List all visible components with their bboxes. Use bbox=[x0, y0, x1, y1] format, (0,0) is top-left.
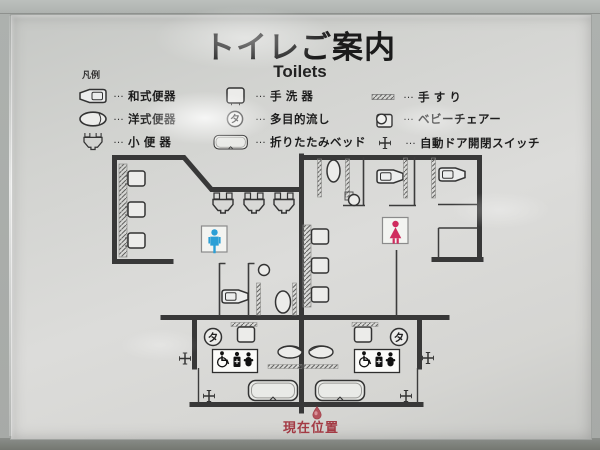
hand-basin-icon bbox=[125, 171, 145, 248]
baby-chair-icon bbox=[366, 110, 400, 128]
legend-item-handrail: … 手 す り bbox=[366, 87, 461, 107]
legend-caption: 凡例 bbox=[82, 68, 100, 81]
corner-basin-icon bbox=[259, 265, 270, 276]
squat-toilet-icon bbox=[222, 290, 248, 303]
squat-toilet-icon bbox=[377, 168, 465, 183]
accessible-sign bbox=[355, 350, 400, 373]
western-toilet-icon bbox=[309, 346, 333, 358]
counter-hatch bbox=[303, 225, 311, 307]
squat-toilet-icon bbox=[76, 87, 110, 105]
handrail-icon bbox=[257, 283, 261, 315]
toilet-guide-sign-photo: トイレご案内 Toilets 凡例 bbox=[0, 0, 600, 450]
western-toilet-icon bbox=[76, 110, 110, 128]
folding-bed-icon bbox=[316, 381, 365, 401]
multipurpose-rooms: タ bbox=[180, 323, 434, 404]
svg-text:タ: タ bbox=[208, 332, 219, 344]
handrail-icon bbox=[304, 365, 338, 369]
hand-basin-icon bbox=[218, 87, 252, 105]
womens-room bbox=[303, 157, 479, 317]
womens-sign bbox=[383, 218, 409, 244]
svg-text:タ: タ bbox=[230, 114, 240, 126]
alcove-thin-wall bbox=[439, 228, 480, 258]
corner-basin-icon bbox=[349, 195, 360, 206]
western-toilet-icon bbox=[278, 346, 302, 358]
multipurpose-sink-icon: タ bbox=[205, 329, 222, 346]
current-location-label: 現在位置 bbox=[283, 420, 339, 435]
western-toilet-icon bbox=[276, 291, 291, 313]
handrail-icon bbox=[318, 159, 322, 197]
western-toilet-icon bbox=[327, 160, 340, 182]
mens-sign bbox=[202, 226, 228, 253]
folding-bed-icon bbox=[249, 381, 298, 401]
handrail-icon bbox=[346, 159, 350, 197]
sign-frame-top bbox=[0, 0, 600, 14]
handrail-icon bbox=[268, 365, 302, 369]
current-location-marker: 現在位置 bbox=[283, 407, 339, 436]
handrail-icon bbox=[432, 158, 436, 198]
counter-hatch bbox=[231, 323, 257, 327]
hand-basin-icon bbox=[355, 327, 372, 342]
multipurpose-sink-icon: タ bbox=[218, 110, 252, 128]
floor-plan: タ bbox=[88, 140, 512, 440]
legend-item-squat-toilet: … 和式便器 bbox=[76, 86, 176, 106]
counter-hatch bbox=[119, 164, 127, 257]
walls bbox=[115, 156, 482, 411]
handrail-icon bbox=[293, 283, 297, 315]
legend-item-multipurpose-sink: タ … 多目的流し bbox=[218, 109, 330, 129]
handrail-icon bbox=[366, 88, 400, 106]
multipurpose-sink-icon: タ bbox=[391, 329, 408, 346]
urinal-icon bbox=[213, 193, 294, 213]
page-title: トイレご案内 bbox=[0, 22, 600, 67]
legend-item-baby-chair: … ベビーチェアー bbox=[366, 109, 501, 129]
handrail-icon bbox=[404, 158, 408, 198]
hand-basin-icon bbox=[312, 229, 329, 302]
svg-text:タ: タ bbox=[394, 332, 405, 344]
accessible-sign bbox=[213, 350, 258, 373]
counter-hatch bbox=[352, 323, 378, 327]
legend-item-hand-basin: … 手 洗 器 bbox=[218, 86, 313, 106]
hand-basin-icon bbox=[238, 327, 255, 342]
legend-item-western-toilet: … 洋式便器 bbox=[76, 109, 176, 129]
